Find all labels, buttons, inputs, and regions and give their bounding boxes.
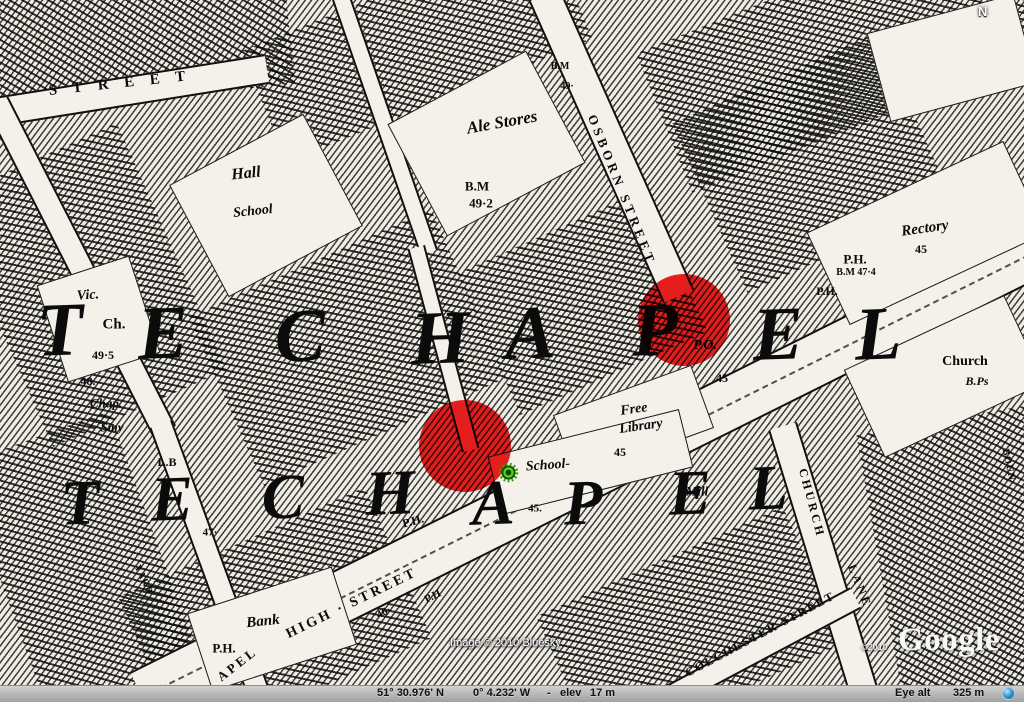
district-display-letter: P	[562, 470, 603, 535]
map-label: Library	[618, 417, 663, 437]
elev-value: 17 m	[590, 687, 615, 699]
district-display-letter: H	[409, 299, 471, 377]
separator: -	[547, 687, 551, 699]
map-label: 45.	[528, 504, 542, 515]
district-display-letter: C	[273, 297, 326, 375]
imagery-credit: Image © 2010 Bluesky	[450, 637, 561, 649]
map-label: Ale Stores	[465, 107, 538, 136]
map-label: B.Ps	[965, 375, 988, 387]
latitude-readout: 51° 30.976' N	[377, 687, 444, 699]
district-display-letter: L	[853, 295, 902, 373]
map-label: CHURCH	[797, 467, 827, 539]
map-label: LANE	[846, 563, 874, 610]
longitude-readout: 0° 4.232' W	[473, 687, 530, 699]
google-earth-window: TECHAPELTECHAPELS T R E E TAle StoresB.M…	[0, 0, 1024, 702]
map-label: 45	[614, 446, 626, 458]
google-logo: Google	[898, 622, 1000, 659]
map-label: P.H	[423, 588, 443, 605]
map-label: P.H.	[816, 285, 838, 297]
map-label: School	[233, 203, 274, 221]
map-label: 45	[915, 243, 927, 255]
map-label: 45	[716, 372, 728, 384]
map-label: Chap.	[90, 397, 122, 410]
copyright-text: ©2010	[861, 642, 888, 652]
map-label: 46·	[375, 605, 393, 621]
district-display-letter: C	[261, 464, 306, 529]
north-indicator: N	[978, 4, 987, 19]
map-label: P.H.	[401, 512, 425, 529]
map-label: Smy	[100, 421, 123, 434]
map-label: 48.	[81, 375, 96, 387]
map-label: Bank	[246, 613, 281, 631]
map-label: B.M 47·4	[836, 268, 875, 278]
map-label: L.B	[157, 456, 176, 468]
eye-alt-value: 325 m	[953, 687, 984, 699]
map-label: P.H.	[843, 253, 866, 266]
district-display-letter: A	[503, 294, 556, 372]
map-label: 49·	[560, 82, 573, 92]
map-label: Hall	[231, 165, 262, 184]
district-display-letter: E	[136, 294, 189, 372]
map-label: Rectory	[900, 218, 949, 239]
map-label: P.H.	[212, 642, 235, 655]
map-label: 49·5	[92, 349, 114, 361]
map-labels-layer: TECHAPELTECHAPELS T R E E TAle StoresB.M…	[0, 0, 1024, 686]
map-label: B.M	[465, 180, 489, 193]
map-label: Church	[942, 355, 988, 369]
district-display-letter: E	[751, 295, 804, 373]
globe-status-icon	[1002, 687, 1015, 700]
map-label: Mill	[686, 485, 708, 498]
map-label: S T R E E T	[48, 69, 192, 99]
eye-alt-label: Eye alt	[895, 687, 930, 699]
red-circle-north[interactable]	[638, 274, 730, 366]
map-label: B.M	[551, 62, 570, 72]
map-label: OSBORN STREET	[586, 113, 659, 268]
map-viewport[interactable]: TECHAPELTECHAPELS T R E E TAle StoresB.M…	[0, 0, 1024, 686]
map-label: COLCHESTER STREET	[683, 589, 837, 678]
green-placemark-icon[interactable]	[498, 462, 519, 483]
district-display-letter: E	[150, 466, 195, 531]
elev-label: elev	[560, 687, 581, 699]
map-label: YARD	[132, 563, 155, 596]
map-label: Free	[620, 401, 649, 419]
map-label: Ch.	[103, 318, 126, 333]
district-display-letter: T	[59, 470, 100, 535]
map-label: BOUN	[1000, 448, 1017, 482]
status-bar: 51° 30.976' N 0° 4.232' W - elev 17 m Ey…	[0, 685, 1024, 702]
map-label: Vic.	[76, 288, 99, 304]
map-label: HIGH · STREET	[284, 566, 420, 642]
map-label: 49·2	[469, 197, 493, 210]
map-label: 47·	[203, 528, 218, 539]
district-display-letter: L	[747, 455, 788, 520]
